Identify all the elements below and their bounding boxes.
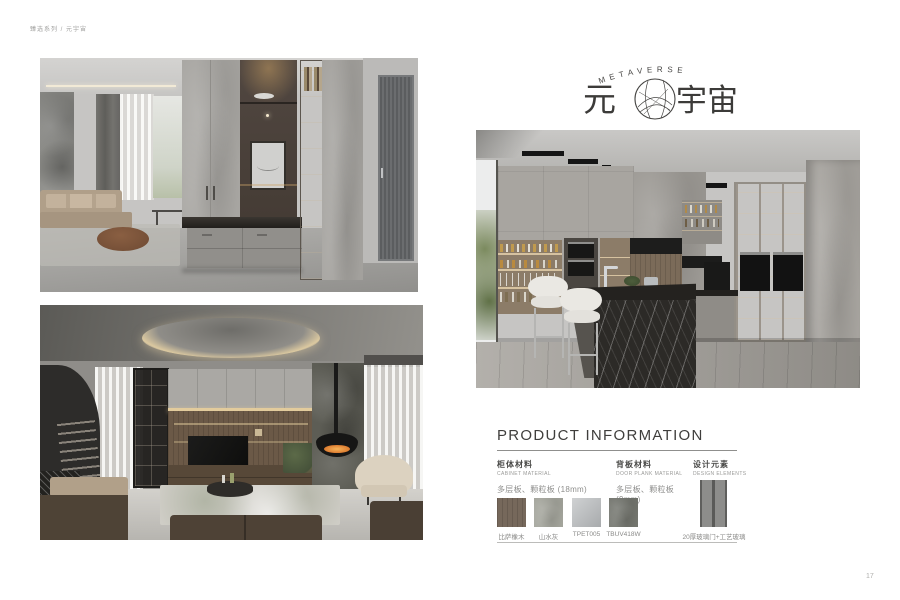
spice-jars (500, 260, 558, 268)
swatch-label: TPET005 (566, 531, 607, 538)
track-light (522, 151, 564, 156)
tv-screen (188, 436, 248, 466)
wardrobe-cabinet (182, 58, 363, 280)
product-information-section: PRODUCT INFORMATION 柜体材料 CABINET MATERIA… (497, 427, 753, 552)
page-number: 17 (866, 573, 874, 580)
swatch-tpet005 (572, 498, 601, 527)
built-in-oven (740, 252, 770, 291)
stone-panel (322, 60, 363, 280)
herb-plant (624, 276, 640, 286)
coffee-machine (704, 262, 730, 290)
island-marble-front (594, 300, 696, 388)
spice-jars (500, 244, 558, 252)
decor-box (255, 429, 262, 436)
stool-leg (534, 308, 536, 358)
art-swoosh (257, 161, 279, 171)
shelf (498, 253, 562, 255)
cabinet-material-value: 多层板、颗粒板 (18mm) (497, 484, 612, 495)
swatch-label: TBUV418W (603, 531, 644, 538)
coffee-table-leg (156, 212, 158, 225)
stool-footrest (536, 336, 564, 338)
breadcrumb: 臻选系列 / 元宇宙 (30, 24, 87, 33)
sofa-seat (40, 212, 132, 228)
coffee-table (207, 481, 253, 497)
divider-top (497, 450, 737, 451)
spotlight (266, 114, 269, 117)
sheer-curtain (120, 94, 154, 200)
bar-stool-back (560, 288, 602, 312)
built-in-oven (773, 252, 803, 291)
cabinet-material-cn: 柜体材料 (497, 459, 612, 470)
door-material-cn: 背板材料 (616, 459, 696, 470)
cove-light (46, 85, 176, 87)
design-element-label: 20厚玻璃门+工艺玻璃 (681, 531, 747, 541)
door-handle (213, 186, 215, 200)
built-in-appliance (568, 260, 594, 276)
stool-leg (568, 323, 570, 375)
ottoman (97, 227, 149, 251)
product-info-title: PRODUCT INFORMATION (497, 427, 753, 444)
door-handle (381, 168, 383, 178)
design-element-swatch (700, 480, 727, 527)
range-hood (630, 238, 682, 254)
photo-living-room-cabinet (40, 58, 418, 292)
cabinet-material-column: 柜体材料 CABINET MATERIAL 多层板、颗粒板 (18mm) (497, 459, 612, 495)
table-plant (230, 473, 234, 483)
divider-bottom (497, 542, 737, 543)
catalog-page: 臻选系列 / 元宇宙 (0, 0, 900, 600)
dark-curtain (96, 94, 122, 198)
globe-icon (635, 79, 675, 119)
glass-display-cabinet (133, 368, 169, 488)
drawer-handle (257, 234, 267, 236)
metaverse-logo: METAVERSE 元 宇宙 (578, 58, 748, 128)
door-handle (206, 186, 208, 200)
bottles (685, 219, 719, 227)
design-elements-cn: 设计元素 (693, 459, 753, 470)
faucet (604, 266, 607, 288)
door-split (210, 60, 211, 217)
entry-door (378, 75, 414, 261)
upper-cabinets (168, 369, 314, 409)
door-material-en: DOOR PLANK MATERIAL (616, 471, 696, 477)
oval-ceiling-light (142, 318, 320, 358)
plinth-shadow (182, 268, 302, 273)
wall-shelf (174, 423, 308, 425)
chaise-base (40, 495, 128, 540)
sofa-right-corner (370, 501, 423, 540)
drawer-handle (202, 234, 212, 236)
shelf (498, 269, 562, 271)
built-in-appliance (568, 242, 594, 258)
swatch-tbuv418w (609, 498, 638, 527)
books (304, 67, 322, 91)
swatch-shanshui-gray (534, 498, 563, 527)
cabinet-doors (182, 60, 240, 217)
track-light (568, 159, 598, 164)
stone-wall-right (806, 160, 860, 352)
niche-under-light (240, 184, 297, 186)
swatch-label: 山水灰 (528, 531, 569, 541)
bench-counter (182, 217, 302, 228)
faucet-spout (604, 266, 618, 269)
bar-stool-seat (564, 310, 600, 323)
fireplace-flue (334, 363, 338, 435)
art-frame (250, 141, 286, 190)
sofa-foreground (170, 515, 322, 540)
niche-shelf (240, 102, 297, 104)
cream-armchair (355, 455, 413, 505)
fire (324, 445, 350, 453)
photo-kitchen (476, 130, 860, 388)
sofa-cushions (46, 194, 116, 208)
appliance-tower (564, 238, 598, 292)
cabinet-material-en: CABINET MATERIAL (497, 471, 612, 477)
photo-living-room-tv-wall (40, 305, 423, 540)
smoked-glass-column (300, 60, 324, 280)
design-elements-column: 设计元素 DESIGN ELEMENTS (693, 459, 753, 477)
design-elements-en: DESIGN ELEMENTS (693, 471, 753, 477)
window (153, 96, 183, 198)
bottles (685, 205, 719, 213)
stool-leg (596, 323, 598, 375)
chaise-cushion (50, 477, 128, 497)
armchair-leg (367, 497, 369, 505)
logo-zh-rest: 宇宙 (676, 83, 738, 119)
decor-dish (254, 93, 274, 99)
swatch-pisa-oak (497, 498, 526, 527)
window (476, 160, 498, 346)
logo-graphic: METAVERSE 元 宇宙 (578, 58, 748, 128)
armchair-seat (361, 485, 407, 497)
jars (602, 243, 630, 251)
stool-footrest (570, 354, 598, 356)
greenery (476, 210, 498, 340)
logo-zh-first: 元 (583, 80, 616, 119)
table-bottle (222, 475, 225, 483)
swatch-label: 比萨橡木 (491, 531, 532, 541)
wall-shelves (682, 200, 722, 244)
